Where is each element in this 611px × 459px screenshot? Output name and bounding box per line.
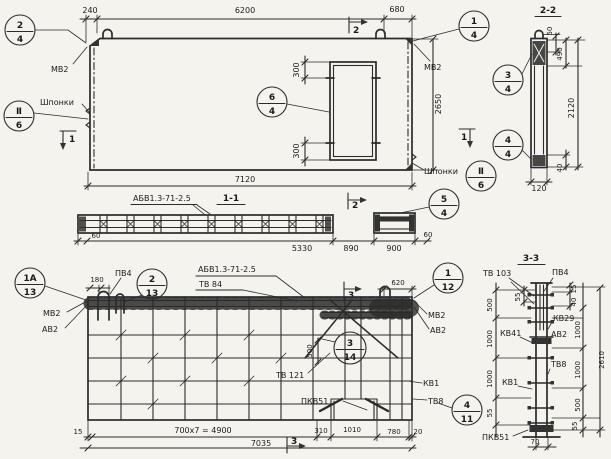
callout-elev-bottom-right: 4 11	[452, 395, 482, 425]
leader-kv29	[548, 322, 552, 329]
callout-num: 2	[17, 21, 23, 31]
callout-plan-keys-left: Ⅱ 6	[4, 101, 34, 131]
dim-890: 890	[343, 244, 358, 253]
label-mv2-elev-right: МВ2	[428, 311, 445, 320]
plan-view: 240 6200 680 2650 7120 300 300 МВ2 МВ2 Ш…	[40, 5, 458, 190]
dim-2610: 2610	[598, 351, 606, 369]
dim-2120: 2120	[567, 98, 576, 118]
leader-pv4	[110, 278, 121, 294]
leader-tv8-sec33	[548, 369, 550, 374]
callout-plan-top-left: 2 4	[5, 15, 35, 45]
dim-60-right: 60	[424, 231, 433, 239]
label-kv29: КВ29	[553, 314, 574, 323]
label-kv1-elev: КВ1	[423, 379, 439, 388]
dim-680: 680	[389, 5, 404, 14]
section-1-1: АБВ1.3-71-2.5 1-1 60 5330 890 900 60	[74, 194, 432, 253]
sec11-title: 1-1	[223, 194, 239, 204]
callout-den: 4	[441, 209, 447, 219]
marker-1-right: 1	[461, 133, 467, 143]
marker-2-bottom: 2	[352, 201, 358, 211]
dim-500-left: 500	[486, 298, 494, 311]
marker-2-top: 2	[353, 26, 359, 36]
label-keys-left: Шпонки	[40, 98, 74, 107]
dim-55-top: 55	[514, 293, 522, 302]
dim-780: 780	[387, 428, 400, 436]
opening-frame	[334, 66, 373, 157]
callout-den: 13	[24, 288, 37, 298]
dim-55-bottom-left: 55	[486, 409, 494, 418]
dim-60-left: 60	[92, 232, 101, 240]
callout-num: Ⅱ	[16, 107, 22, 117]
elev-mark-bottom: ТВ 84	[198, 280, 222, 289]
leader-av2-elev-right	[414, 307, 429, 329]
dim-900: 900	[386, 244, 401, 253]
callout-num: 3	[347, 339, 353, 349]
callout-sec22-bottom: 4 4	[493, 130, 523, 160]
callout-den: 4	[17, 35, 23, 45]
sec22-title: 2-2	[540, 6, 556, 16]
dim-500-right: 500	[574, 398, 582, 411]
callout-elev-top-right: 1 12	[433, 263, 463, 293]
opening-embed-ticks	[326, 78, 380, 143]
callout-den: 6	[16, 121, 22, 131]
leader-pkv51-elev	[343, 401, 367, 410]
label-tv103: ТВ 103	[482, 269, 511, 278]
sec33-column	[531, 283, 552, 437]
callout-plan-top-right: 1 4	[459, 11, 489, 41]
dim-7035: 7035	[251, 439, 271, 448]
callout-num: 5	[441, 195, 447, 205]
label-av2-elev-left: АВ2	[42, 325, 58, 334]
label-pv4-sec33: ПВ4	[552, 268, 569, 277]
callout-num: 6	[269, 93, 275, 103]
dim-40-right: 40	[570, 298, 578, 307]
sec22-inner-lines	[535, 66, 544, 154]
dim-620: 620	[391, 279, 404, 287]
label-mv2-elev-left: МВ2	[43, 309, 60, 318]
panel-outline	[90, 39, 412, 171]
drawing-sheet: 240 6200 680 2650 7120 300 300 МВ2 МВ2 Ш…	[0, 0, 611, 459]
dim-1000-left-a: 1000	[486, 330, 494, 348]
callout-num: 1А	[23, 274, 36, 284]
sec11-slab	[78, 215, 333, 233]
keys-marks	[86, 108, 416, 160]
label-mv2-right: МВ2	[424, 63, 441, 72]
dim-55-right: 55	[571, 422, 579, 431]
dim-310: 310	[314, 427, 327, 435]
sec11-flanges	[80, 221, 331, 228]
marker-1-left: 1	[69, 135, 75, 145]
section-2-2: 2-2 50 490 2120 40 120	[526, 6, 585, 193]
callout-num: Ⅱ	[478, 167, 484, 177]
callout-num: 4	[505, 136, 511, 146]
sec22-dim-ext-120	[531, 169, 547, 185]
callout-den: 11	[461, 415, 474, 425]
leader-mv2-right	[414, 44, 430, 61]
sec33-stirrups	[530, 295, 553, 423]
dim-50: 50	[546, 27, 554, 36]
dim-1010: 1010	[343, 426, 361, 434]
leader-keys-right	[412, 163, 424, 170]
callout-leaders	[34, 29, 532, 408]
callout-elev-top: 2 13	[137, 269, 167, 299]
callout-num: 3	[505, 71, 511, 81]
opening-outline	[330, 62, 376, 160]
dim-120: 120	[531, 184, 546, 193]
dim-240: 240	[82, 6, 97, 15]
elev-mark-top: АБВ1.3-71-2.5	[198, 265, 256, 274]
callout-den: 6	[478, 181, 484, 191]
label-pkv51-elev: ПКВ51	[301, 397, 328, 406]
label-keys-right: Шпонки	[424, 167, 458, 176]
leader-mv2-elev-left	[67, 301, 87, 312]
dim-40: 40	[556, 164, 564, 173]
label-kv1-sec33: КВ1	[502, 378, 518, 387]
dim-15-right: 15	[570, 285, 578, 294]
dim-5330: 5330	[292, 244, 312, 253]
callout-den: 12	[442, 283, 455, 293]
dim-500: 500	[306, 344, 314, 357]
callout-den: 14	[344, 353, 357, 363]
leader-pv4-sec33	[544, 278, 553, 291]
dim-1000-left-b: 1000	[486, 370, 494, 388]
label-kv41: КВ41	[500, 329, 521, 338]
elev-horizontal-bars	[88, 335, 412, 404]
sec11-end-piece	[374, 213, 415, 233]
sec11-mark: АБВ1.3-71-2.5	[133, 194, 191, 203]
dim-1000-right-a: 1000	[574, 321, 582, 339]
callout-den: 4	[505, 85, 511, 95]
elev-corner-eases	[116, 330, 286, 409]
sec33-title: 3-3	[523, 254, 539, 264]
callout-sec11-end: 5 4	[429, 189, 459, 219]
label-tv8-elev: ТВ8	[427, 397, 443, 406]
callout-num: 4	[464, 401, 470, 411]
dim-15: 15	[74, 428, 83, 436]
callout-num: 1	[445, 269, 451, 279]
callout-elev-top-left: 1А 13	[15, 268, 45, 298]
sec11-end-block-left	[79, 217, 86, 232]
label-mv2-left: МВ2	[51, 65, 68, 74]
callout-sec22-top: 3 4	[493, 65, 523, 95]
label-tv121: ТВ 121	[275, 371, 304, 380]
dim-490: 490	[556, 47, 564, 60]
corner-embeds	[90, 39, 412, 171]
label-tv8-sec33: ТВ8	[550, 360, 566, 369]
sec11-end-block-right	[325, 217, 331, 232]
sec33-base-block	[530, 425, 554, 432]
leader-av2-elev-left	[65, 305, 87, 328]
dim-7120: 7120	[235, 175, 255, 184]
elev-mark-top-leader	[276, 276, 305, 298]
sec11-mark-leader	[193, 205, 210, 214]
dim-2650: 2650	[434, 94, 443, 114]
sec22-bottom-block	[533, 155, 546, 166]
callout-num: 2	[149, 275, 155, 285]
label-av2-elev-right: АВ2	[430, 326, 446, 335]
marker-3-bottom: 3	[291, 437, 297, 447]
dim-6200: 6200	[235, 6, 255, 15]
dim-20: 20	[414, 428, 423, 436]
lifting-loops	[103, 30, 385, 39]
sec22-ext-lines	[543, 35, 585, 168]
callout-den: 4	[505, 150, 511, 160]
callout-plan-opening: 6 4	[257, 87, 287, 117]
dim-70: 70	[531, 438, 540, 446]
leader-pkv51-sec33	[513, 430, 528, 436]
elev-dim-ext-bottom	[88, 421, 412, 441]
leader-kv41	[520, 337, 533, 343]
label-pv4: ПВ4	[115, 269, 132, 278]
section-3-3: 3-3 ТВ 103 ПВ4 КВ29 АВ2 КВ41 КВ1 ТВ8 ПКВ…	[482, 254, 606, 450]
sec22-loop	[535, 31, 543, 39]
callout-den: 4	[471, 31, 477, 41]
sec11-dim-ext	[78, 234, 415, 245]
leader-kv1-elev	[408, 381, 422, 383]
callout-plan-keys-right: Ⅱ 6	[466, 161, 496, 191]
drawing-canvas: 240 6200 680 2650 7120 300 300 МВ2 МВ2 Ш…	[0, 0, 611, 459]
dim-300-bottom: 300	[292, 143, 301, 158]
leader-mv2-left	[73, 47, 87, 64]
dim-180: 180	[90, 276, 103, 284]
leader-tv8-elev	[413, 399, 427, 400]
callout-num: 1	[471, 17, 477, 27]
label-av2-sec33: АВ2	[551, 330, 567, 339]
dim-4900: 700x7 = 4900	[174, 426, 231, 435]
callout-den: 13	[146, 289, 159, 299]
marker-arrowheads	[60, 19, 473, 449]
elevation-view: 180 620 500 ПВ4 МВ2 АВ2 АБВ1.3-71-2.5 ТВ…	[42, 265, 446, 451]
callout-den: 4	[269, 107, 275, 117]
dim-300-top: 300	[292, 62, 301, 77]
leader-kv1-sec33	[518, 386, 532, 389]
dim-1000-right-b: 1000	[574, 361, 582, 379]
